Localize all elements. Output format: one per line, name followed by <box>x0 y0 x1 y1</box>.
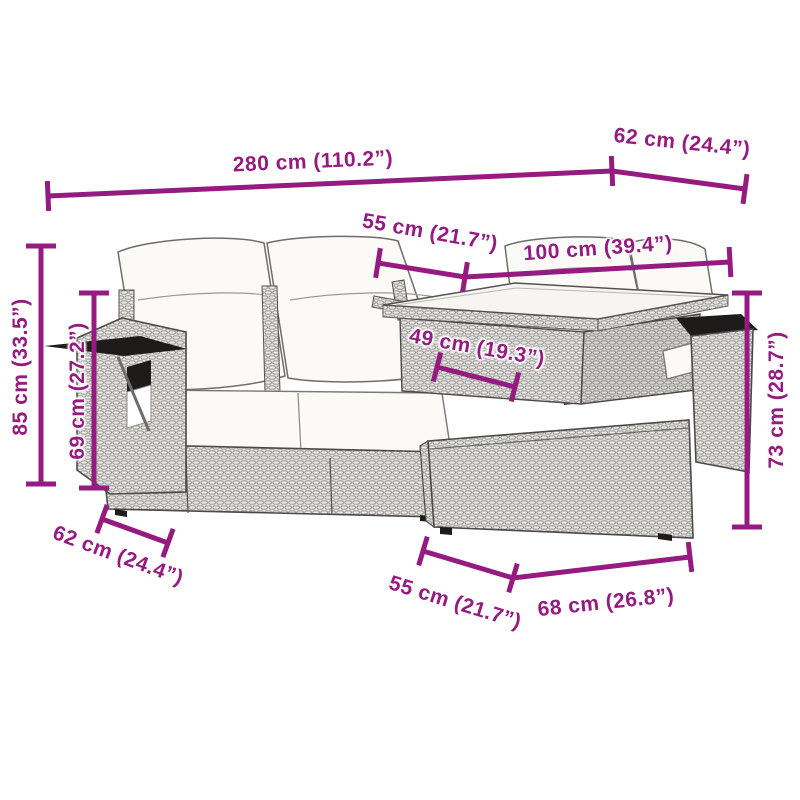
furniture-illustration <box>0 0 800 800</box>
dim-line-ottoman-width <box>513 557 690 578</box>
table <box>383 283 728 404</box>
dim-tick-bench-width-end <box>729 247 731 277</box>
dim-line-seat-depth <box>102 519 168 543</box>
dim-tick-overall-width-start <box>47 181 48 211</box>
ottoman-foot <box>440 527 452 535</box>
table-skirt-front <box>400 318 584 404</box>
dim-line-ottoman-depth <box>423 551 513 578</box>
back-post <box>262 286 280 392</box>
dim-tick-ottoman-width-end <box>688 542 692 572</box>
dimension-diagram: 280 cm (110.2”)62 cm (24.4”)55 cm (21.7”… <box>0 0 800 800</box>
ottoman <box>420 420 693 541</box>
ottoman-front <box>428 420 693 538</box>
dim-tick-top-depth-end <box>743 174 747 204</box>
right-armrest <box>691 329 753 472</box>
dim-line-overall-width <box>48 171 612 196</box>
dim-line-top-depth <box>612 171 745 189</box>
left-sofa <box>44 236 460 522</box>
